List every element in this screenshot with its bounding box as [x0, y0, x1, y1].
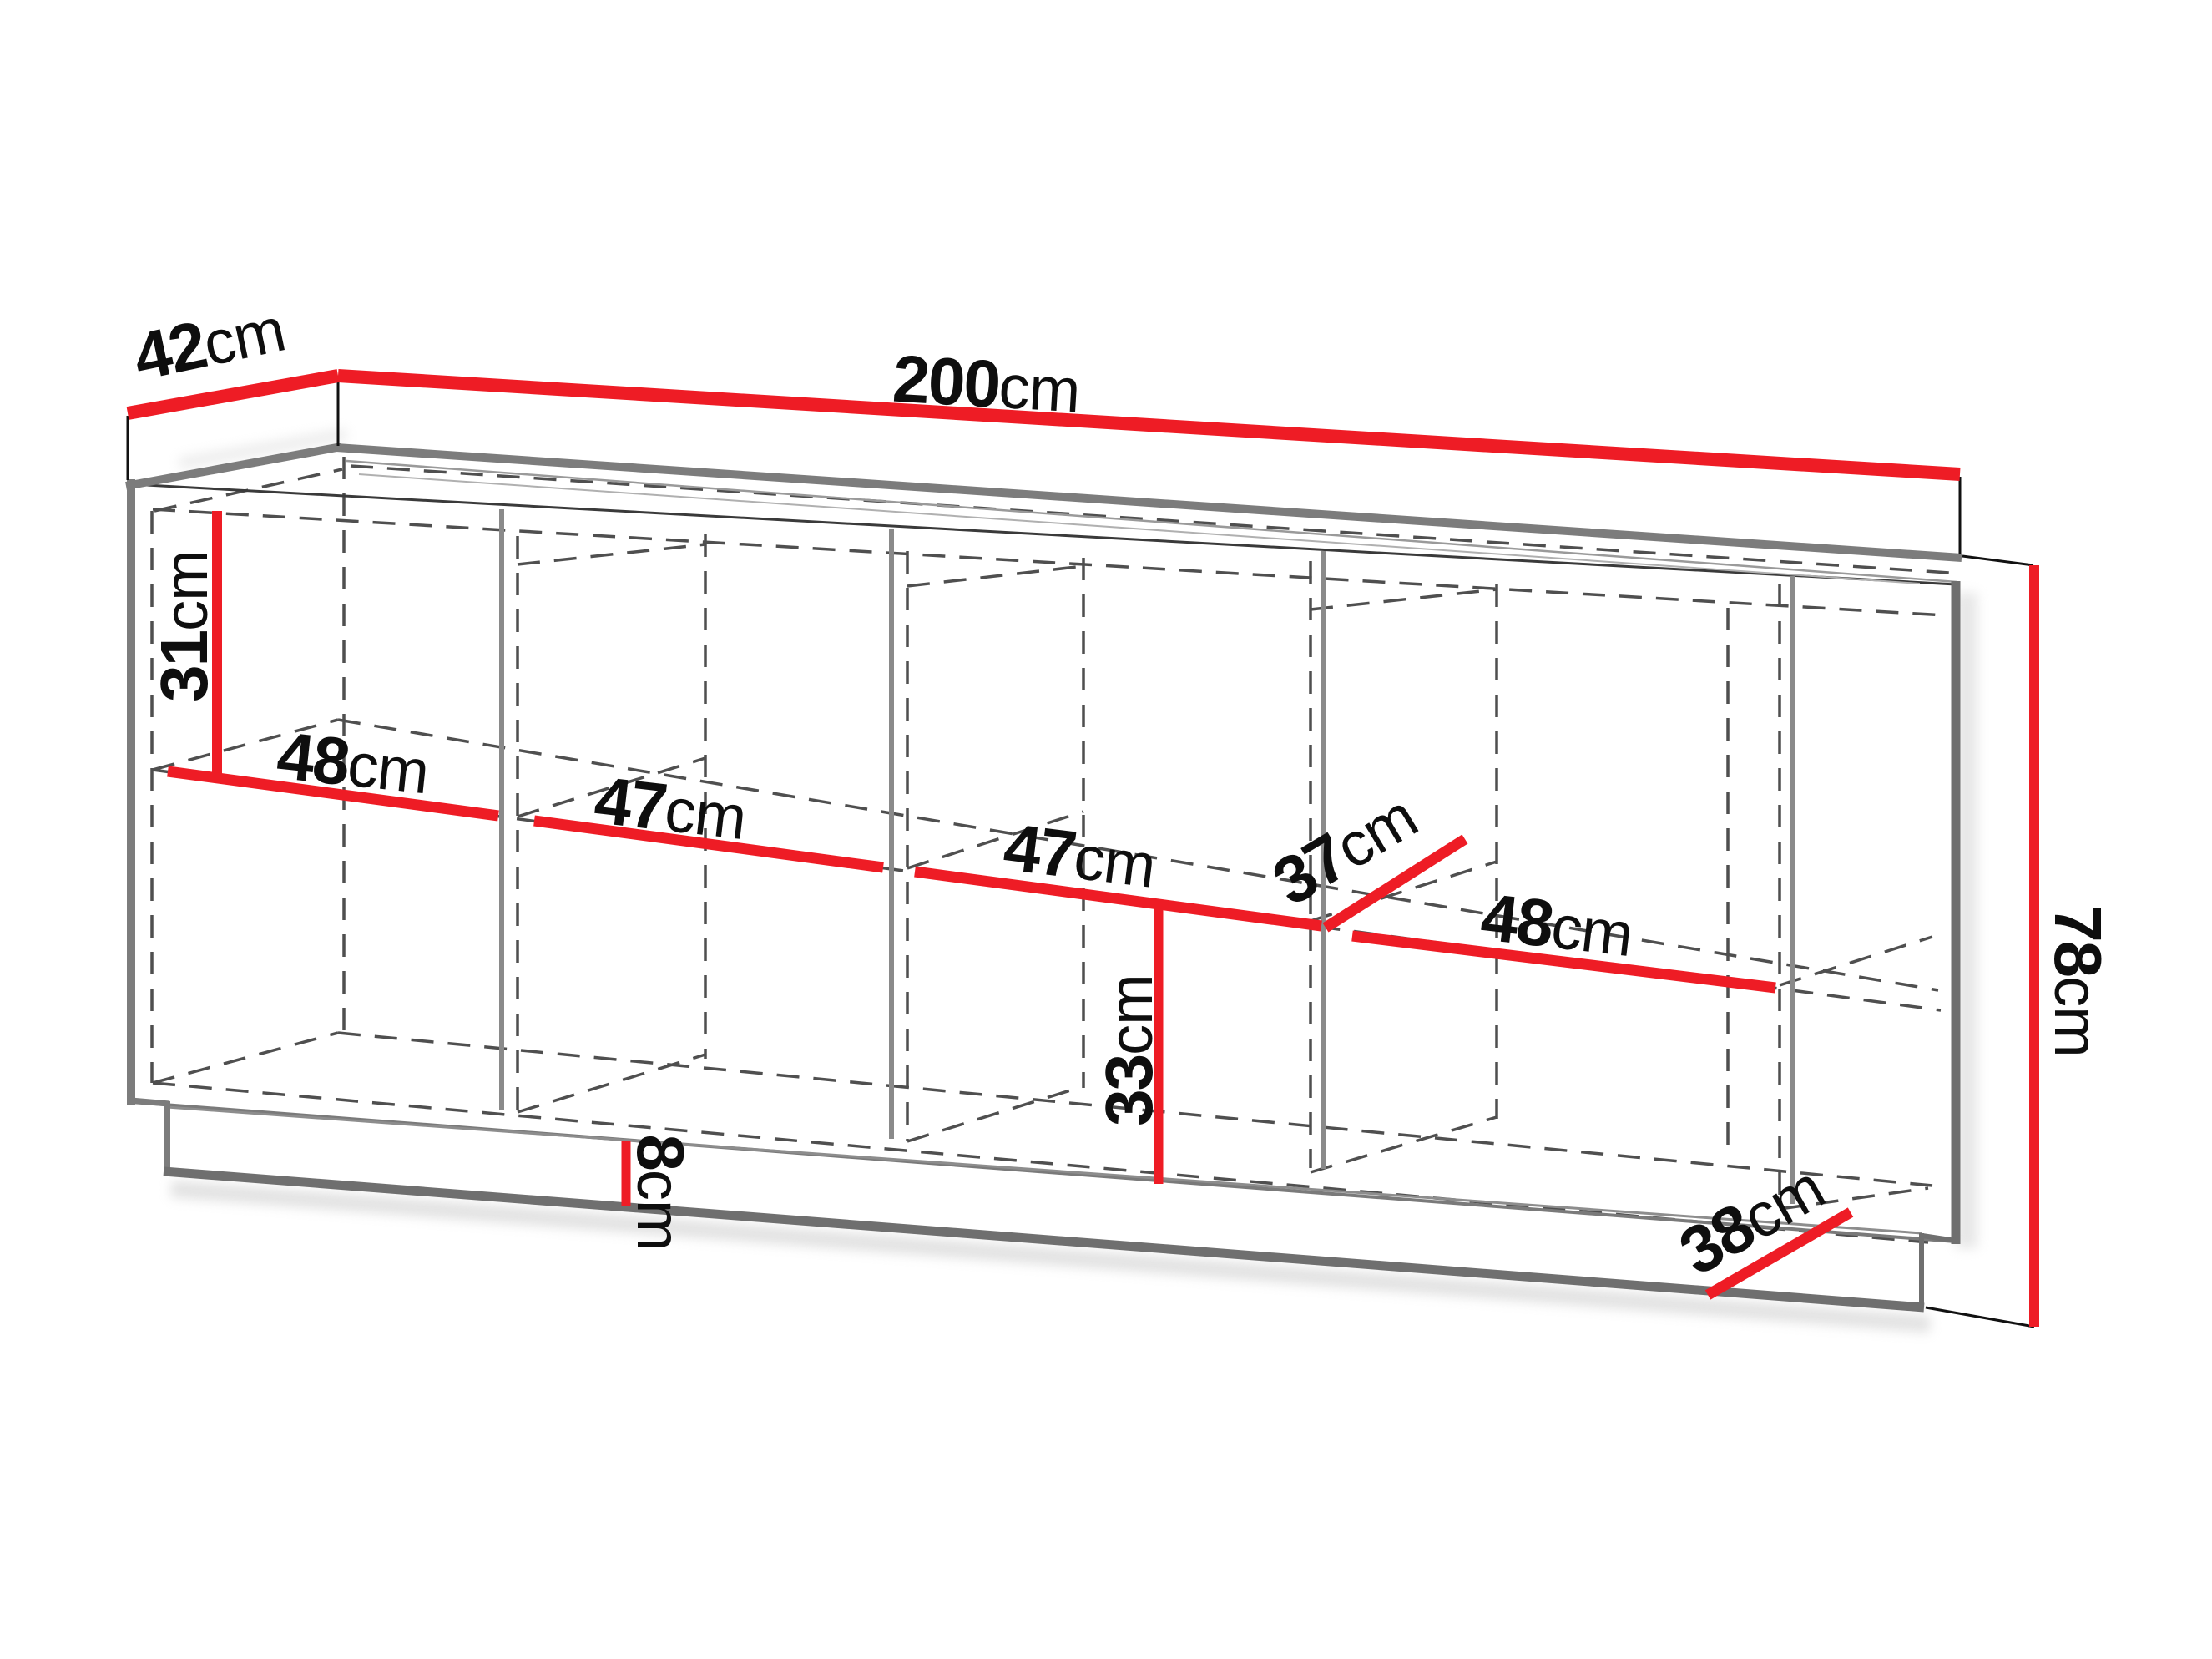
dim-label-total-width: 200cm [891, 341, 1082, 427]
connector-78-bottom [1926, 1307, 2034, 1327]
dimension-diagram-page: 42cm 200cm 31cm 48cm 47cm 47cm 37cm 48cm… [0, 0, 2212, 1659]
dim-label-plinth-height: 8cm [624, 1134, 698, 1250]
dim-label-total-height: 78cm [2041, 905, 2115, 1057]
dim-label-lower-clearance: 33cm [1092, 974, 1166, 1126]
dim-line-total-width-200 [338, 376, 1960, 474]
sideboard-dimension-diagram: 42cm 200cm 31cm 48cm 47cm 47cm 37cm 48cm… [0, 0, 2212, 1659]
connector-78-top [1962, 556, 2033, 565]
dim-label-upper-clearance: 31cm [147, 550, 221, 702]
dim-label-top-depth: 42cm [127, 291, 290, 395]
